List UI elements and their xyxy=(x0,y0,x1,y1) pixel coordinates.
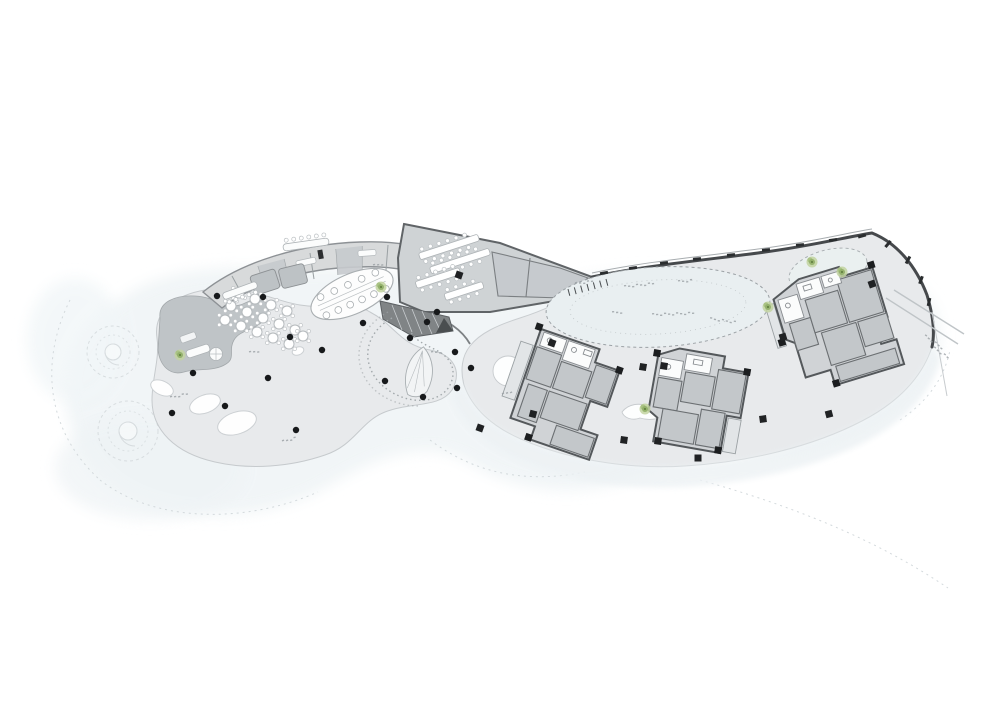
chair xyxy=(281,337,285,341)
annotation-dash xyxy=(946,356,949,358)
annotation-dash xyxy=(688,312,690,313)
tree xyxy=(640,404,651,415)
column-round xyxy=(424,319,430,325)
annotation-dash xyxy=(628,285,630,287)
annotation-dash xyxy=(431,351,433,353)
annotation-dash xyxy=(672,314,674,315)
tree-center xyxy=(841,271,843,273)
chair xyxy=(223,299,227,303)
chair xyxy=(281,347,285,351)
tree-center xyxy=(767,306,769,308)
annotation-dash xyxy=(620,312,622,314)
chair xyxy=(247,302,251,306)
chair xyxy=(239,305,243,309)
table-top xyxy=(242,307,252,317)
column-square xyxy=(759,415,767,423)
column-round xyxy=(287,334,293,340)
annotation-dash xyxy=(624,285,626,287)
annotation-dash xyxy=(940,347,943,349)
tree xyxy=(175,350,186,361)
chair xyxy=(283,327,287,331)
round-table xyxy=(239,305,254,318)
chair xyxy=(283,317,287,321)
column-round xyxy=(293,427,299,433)
annotation-dash xyxy=(684,314,686,315)
annotation-dash xyxy=(664,313,666,314)
table-top xyxy=(274,319,284,329)
chair xyxy=(299,236,304,241)
annotation-dash xyxy=(435,351,437,353)
tree-center xyxy=(380,286,382,288)
chair xyxy=(307,329,311,333)
round-table xyxy=(217,313,232,326)
chair xyxy=(229,323,233,327)
chair xyxy=(255,321,259,325)
table-top xyxy=(258,313,268,323)
annotation-dash xyxy=(680,313,682,314)
chair xyxy=(287,323,291,327)
annotation-dash xyxy=(612,311,614,313)
table-top xyxy=(268,333,278,343)
chair xyxy=(291,237,296,242)
column-round xyxy=(434,309,440,315)
column-square xyxy=(654,437,662,445)
annotation-dash xyxy=(678,280,680,282)
annotation-dash xyxy=(690,279,692,281)
tree xyxy=(376,282,387,293)
round-table xyxy=(279,304,294,317)
column-square xyxy=(660,362,668,370)
chair xyxy=(233,329,237,333)
table-top xyxy=(252,327,262,337)
table-top xyxy=(266,300,276,310)
chair xyxy=(277,331,281,335)
chair xyxy=(279,314,283,318)
plan-svg xyxy=(0,0,1000,706)
chair xyxy=(299,323,303,327)
chair xyxy=(293,347,297,351)
chair xyxy=(307,339,311,343)
annotation-dash xyxy=(652,283,654,285)
chair xyxy=(263,308,267,312)
tree xyxy=(763,302,774,313)
tree-center xyxy=(644,408,646,410)
annotation-dash xyxy=(616,312,618,314)
annotation-dash xyxy=(640,284,642,286)
chair xyxy=(291,304,295,308)
table-top xyxy=(236,321,246,331)
round-table xyxy=(295,329,310,342)
band-counter xyxy=(358,249,376,256)
chair xyxy=(239,315,243,319)
column-round xyxy=(454,385,460,391)
annotation-dash xyxy=(636,284,638,286)
chair xyxy=(271,327,275,331)
chair xyxy=(314,234,319,239)
column-round xyxy=(214,293,220,299)
annotation-dash xyxy=(648,282,650,284)
table-top xyxy=(282,306,292,316)
annotation-dash xyxy=(682,280,684,282)
column-round xyxy=(384,294,390,300)
tree xyxy=(807,257,818,268)
column-round xyxy=(452,349,458,355)
table-top xyxy=(284,339,294,349)
chair xyxy=(277,341,281,345)
table-top xyxy=(220,315,230,325)
chair xyxy=(233,319,237,323)
round-table xyxy=(271,317,286,330)
chair xyxy=(265,341,269,345)
column-square xyxy=(695,455,702,462)
annotation-dash xyxy=(656,314,658,315)
table-top xyxy=(250,294,260,304)
chair xyxy=(307,235,312,240)
column-round xyxy=(420,394,426,400)
column-round xyxy=(468,365,474,371)
annotation-dash xyxy=(944,353,947,355)
contour-line xyxy=(700,480,948,588)
tree-center xyxy=(811,261,813,263)
chair xyxy=(275,298,279,302)
chair xyxy=(295,339,299,343)
tree xyxy=(837,267,848,278)
chair xyxy=(251,305,255,309)
chair xyxy=(217,323,221,327)
chair xyxy=(322,233,327,238)
annotation-dash xyxy=(644,285,646,287)
annotation-dash xyxy=(652,313,654,314)
column-square xyxy=(639,363,647,371)
chair xyxy=(259,302,263,306)
chair xyxy=(235,309,239,313)
chair xyxy=(223,309,227,313)
annotation-dash xyxy=(676,312,678,313)
chair xyxy=(295,329,299,333)
chair xyxy=(217,313,221,317)
chair xyxy=(284,238,289,243)
round-table xyxy=(263,298,278,311)
chair xyxy=(255,311,259,315)
chair xyxy=(267,321,271,325)
column-round xyxy=(319,347,325,353)
annotation-dash xyxy=(632,286,634,288)
round-table xyxy=(265,331,280,344)
floor-plan-page xyxy=(0,0,1000,706)
column-round xyxy=(260,294,266,300)
chair xyxy=(261,335,265,339)
round-table xyxy=(249,325,264,338)
chair xyxy=(279,304,283,308)
annotation-dash xyxy=(668,313,670,314)
annotation-dash xyxy=(439,352,441,354)
landscape-halo-west xyxy=(27,278,123,402)
column-round xyxy=(265,375,271,381)
chair xyxy=(251,315,255,319)
annotation-dash xyxy=(686,281,688,283)
chair xyxy=(275,308,279,312)
chair xyxy=(245,329,249,333)
column-square xyxy=(620,436,628,444)
chair xyxy=(291,314,295,318)
chair xyxy=(261,325,265,329)
round-table xyxy=(233,319,248,332)
tree-center xyxy=(179,354,181,356)
chair xyxy=(265,331,269,335)
chair xyxy=(249,325,253,329)
column-round xyxy=(360,320,366,326)
chair xyxy=(271,317,275,321)
column-round xyxy=(222,403,228,409)
chair xyxy=(267,311,271,315)
column-round xyxy=(407,335,413,341)
column-round xyxy=(382,378,388,384)
chair xyxy=(229,313,233,317)
chair xyxy=(245,319,249,323)
column-round xyxy=(169,410,175,416)
annotation-dash xyxy=(692,313,694,314)
annotation-dash xyxy=(660,315,662,316)
chair xyxy=(249,335,253,339)
round-table xyxy=(255,311,270,324)
column-round xyxy=(190,370,196,376)
table-top xyxy=(298,331,308,341)
